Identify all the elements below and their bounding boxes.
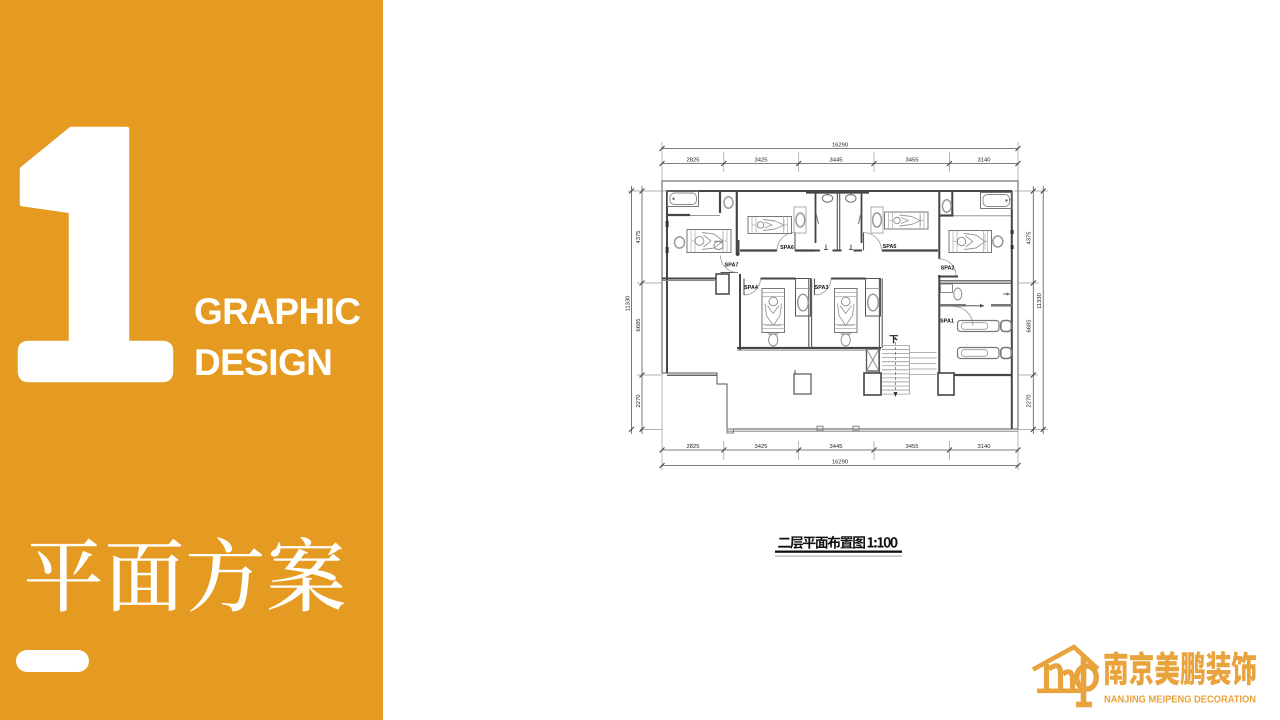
svg-text:3455: 3455 xyxy=(906,158,919,164)
svg-text:3140: 3140 xyxy=(978,158,991,164)
svg-text:3140: 3140 xyxy=(978,444,991,450)
svg-text:3425: 3425 xyxy=(755,444,768,450)
svg-text:6685: 6685 xyxy=(1027,320,1033,333)
svg-text:11330: 11330 xyxy=(1037,293,1043,309)
svg-text:2825: 2825 xyxy=(687,444,700,450)
svg-text:SPA4: SPA4 xyxy=(744,285,758,291)
svg-text:SPA6: SPA6 xyxy=(780,245,794,251)
svg-text:2270: 2270 xyxy=(636,395,642,408)
svg-text:SPA1: SPA1 xyxy=(940,319,954,325)
svg-text:3425: 3425 xyxy=(755,158,768,164)
svg-text:SPA5: SPA5 xyxy=(883,244,897,250)
svg-text:2270: 2270 xyxy=(1027,395,1033,408)
svg-text:4375: 4375 xyxy=(636,231,642,244)
svg-text:NANJING MEIPENG DECORATION: NANJING MEIPENG DECORATION xyxy=(1104,695,1256,706)
svg-text:3445: 3445 xyxy=(830,444,843,450)
svg-text:SPA7: SPA7 xyxy=(725,263,739,269)
svg-text:11330: 11330 xyxy=(626,296,632,312)
svg-text:2825: 2825 xyxy=(687,158,700,164)
svg-text:4375: 4375 xyxy=(1027,232,1033,245)
svg-text:16290: 16290 xyxy=(832,143,848,149)
svg-text:SPA2: SPA2 xyxy=(941,266,955,272)
svg-text:3445: 3445 xyxy=(830,158,843,164)
svg-text:3455: 3455 xyxy=(906,444,919,450)
svg-text:SPA3: SPA3 xyxy=(815,285,829,291)
svg-text:6685: 6685 xyxy=(636,319,642,332)
svg-text:16290: 16290 xyxy=(832,460,848,466)
